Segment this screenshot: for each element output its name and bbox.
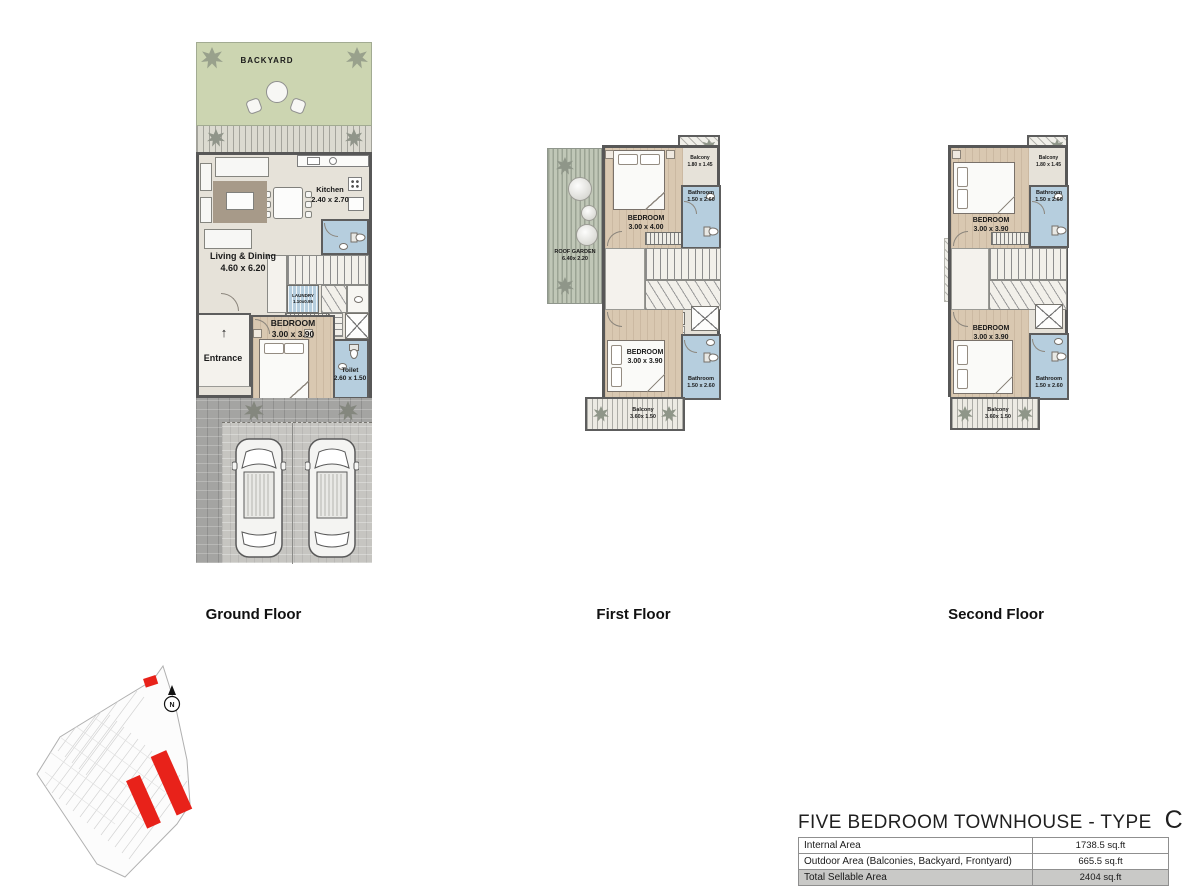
door-arc xyxy=(607,312,622,327)
room-name: BEDROOM xyxy=(961,216,1021,225)
second-floor-interior: BEDROOM 3.00 x 3.90 Bathroom 1.50 x 2.60 xyxy=(948,145,1068,397)
washbasin-icon xyxy=(706,339,715,346)
blanket-fold xyxy=(289,381,309,399)
room-dims: 3.00 x 3.90 xyxy=(961,333,1021,342)
room-name: Bathroom xyxy=(1029,190,1069,197)
blanket-fold xyxy=(645,192,665,210)
staircase xyxy=(287,255,369,285)
ground-floor-plan: BACKYARD Kitchen 2.40 x 2.70 xyxy=(196,42,372,565)
first-floor-title: First Floor xyxy=(561,606,706,623)
vanity-nook xyxy=(347,285,369,313)
roof-garden-area: ROOF GARDEN 6.40x 2.20 xyxy=(547,148,602,304)
room-dims: 1.10x0.95 xyxy=(288,299,318,305)
pillow-icon xyxy=(957,369,968,389)
room-name: Balcony xyxy=(617,407,669,414)
living-dining-label: Living & Dining 4.60 x 6.20 xyxy=(203,251,283,274)
blanket-fold xyxy=(647,374,665,392)
sink-bowl-icon xyxy=(329,157,337,165)
balcony: Balcony 3.60x 1.50 xyxy=(585,397,685,431)
dining-chair-icon xyxy=(305,211,312,218)
up-arrow-icon: ↑ xyxy=(214,325,234,342)
patio-table-icon xyxy=(266,81,288,103)
bedroom-label: BEDROOM 3.00 x 3.90 xyxy=(961,216,1021,234)
nightstand-icon xyxy=(666,150,675,159)
plant-icon xyxy=(338,401,358,421)
staircase xyxy=(989,248,1067,280)
sofa-icon xyxy=(204,229,252,249)
room-name: BACKYARD xyxy=(227,56,307,66)
bed-icon xyxy=(259,339,309,399)
pillow-icon xyxy=(640,154,660,165)
sofa-icon xyxy=(215,157,269,177)
parking-pad xyxy=(222,422,372,563)
balcony-label: Balcony 3.60x 1.50 xyxy=(972,407,1024,421)
room-dims: 3.60x 1.50 xyxy=(617,414,669,421)
room-name: Bathroom xyxy=(1029,376,1069,383)
driveway-area xyxy=(196,398,372,563)
balcony-label: Balcony 3.60x 1.50 xyxy=(617,407,669,421)
bed-icon xyxy=(953,162,1015,214)
table-row-total: Total Sellable Area 2404 sq.ft xyxy=(799,869,1168,885)
car-icon xyxy=(305,436,359,560)
ground-floor-interior: Kitchen 2.40 x 2.70 Living & Dining 4.60… xyxy=(196,152,372,398)
deck-area xyxy=(196,126,372,152)
pillow-icon xyxy=(618,154,638,165)
second-floor-title: Second Floor xyxy=(922,606,1070,623)
bathroom-label: Bathroom 1.50 x 2.60 xyxy=(1029,376,1069,390)
plant-icon xyxy=(201,47,223,69)
area-row-label: Internal Area xyxy=(799,838,1033,853)
floor-plan-sheet: BACKYARD Kitchen 2.40 x 2.70 xyxy=(0,0,1183,896)
room-dims: 1.80 x 1.45 xyxy=(1031,162,1066,169)
blanket-fold xyxy=(997,196,1015,214)
pillow-icon xyxy=(264,343,284,354)
plant-icon xyxy=(346,47,368,69)
room-name: LAUNDRY xyxy=(288,293,318,299)
bedroom-label: BEDROOM 3.00 x 4.00 xyxy=(617,214,675,232)
toilet-icon xyxy=(704,353,719,363)
kitchen-sink-icon xyxy=(307,157,320,165)
pillow-icon xyxy=(611,367,622,387)
bed-icon xyxy=(613,150,665,210)
shaft xyxy=(691,306,719,331)
balcony: Balcony 3.60x 1.50 xyxy=(950,397,1040,430)
tree-icon xyxy=(576,224,598,246)
area-row-value: 665.5 sq.ft xyxy=(1033,854,1168,869)
area-row-label: Total Sellable Area xyxy=(799,870,1033,885)
entrance-area: ↑ Entrance xyxy=(199,313,251,387)
toilet-icon xyxy=(704,227,719,237)
room-dims: 3.60x 1.50 xyxy=(972,414,1024,421)
table-row: Outdoor Area (Balconies, Backyard, Front… xyxy=(799,853,1168,869)
plant-icon xyxy=(556,157,574,175)
stair-landing xyxy=(605,248,645,310)
room-dims: 1.50 x 2.60 xyxy=(1029,383,1069,390)
entrance-arrow: ↑ xyxy=(214,325,234,342)
door-arc xyxy=(324,223,338,237)
room-dims: 3.00 x 4.00 xyxy=(617,223,675,232)
patio-chair-icon xyxy=(289,97,307,115)
plant-icon xyxy=(207,129,225,147)
room-dims: 1.80 x 1.45 xyxy=(682,162,718,169)
plant-icon xyxy=(957,406,973,422)
staircase xyxy=(645,248,721,280)
plan-type-letter: C xyxy=(1165,806,1183,835)
plan-title-text: FIVE BEDROOM TOWNHOUSE - TYPE xyxy=(798,812,1152,834)
area-row-value: 1738.5 sq.ft xyxy=(1033,838,1168,853)
room-dims: 1.50 x 2.60 xyxy=(681,383,721,390)
room-name: Toilet xyxy=(328,367,372,375)
staircase-winder xyxy=(321,285,347,313)
toilet-label: Toilet 2.60 x 1.50 xyxy=(328,367,372,384)
backyard-label: BACKYARD xyxy=(227,56,307,66)
coffee-table-icon xyxy=(226,192,254,210)
shaft xyxy=(1035,304,1063,329)
plant-icon xyxy=(556,277,574,295)
patio-chair-icon xyxy=(245,97,263,115)
door-arc xyxy=(684,340,697,353)
car-icon xyxy=(232,436,286,560)
roof-garden-label: ROOF GARDEN 6.40x 2.20 xyxy=(549,249,601,263)
tree-icon xyxy=(568,177,592,201)
north-label: N xyxy=(169,702,174,709)
ground-floor-title: Ground Floor xyxy=(181,606,326,623)
site-plan: N xyxy=(25,652,230,890)
toilet-icon xyxy=(351,233,366,243)
pillow-icon xyxy=(957,167,968,187)
balcony-label: Balcony 1.80 x 1.45 xyxy=(682,155,718,168)
bedroom-label: BEDROOM 3.00 x 3.90 xyxy=(961,324,1021,342)
bathroom-label: Bathroom 1.50 x 2.60 xyxy=(1029,190,1069,204)
laundry-label: LAUNDRY 1.10x0.95 xyxy=(288,293,318,305)
toilet-icon xyxy=(1052,226,1067,236)
bathroom-label: Bathroom 1.50 x 2.60 xyxy=(681,376,721,390)
bathroom-label: Bathroom 1.50 x 2.60 xyxy=(681,190,721,204)
room-dims: 2.60 x 1.50 xyxy=(328,375,372,383)
wardrobe xyxy=(645,232,685,245)
nightstand-icon xyxy=(605,150,614,159)
armchair-icon xyxy=(200,163,212,191)
washbasin-icon xyxy=(1054,338,1063,345)
area-table: Internal Area 1738.5 sq.ft Outdoor Area … xyxy=(798,837,1169,886)
door-arc xyxy=(607,231,622,246)
washbasin-icon xyxy=(354,296,363,303)
second-floor-plan: Balcony 1.80 x 1.45 BEDROOM 3.00 x 3.90 xyxy=(944,135,1074,435)
room-name: Bathroom xyxy=(681,376,721,383)
room-name: ROOF GARDEN xyxy=(549,249,601,256)
room-dims: 4.60 x 6.20 xyxy=(203,263,283,275)
first-floor-plan: ROOF GARDEN 6.40x 2.20 Balcony 1.80 x 1.… xyxy=(545,135,720,435)
tree-icon xyxy=(581,205,597,221)
room-dims: 1.50 x 2.60 xyxy=(681,197,721,204)
room-name: BEDROOM xyxy=(615,348,675,357)
nightstand-icon xyxy=(952,150,961,159)
plant-icon xyxy=(244,401,264,421)
blanket-fold xyxy=(995,376,1013,394)
room-name: Entrance xyxy=(199,353,247,365)
door-arc xyxy=(1032,339,1045,352)
powder-room xyxy=(321,219,369,255)
room-dims: 3.00 x 3.90 xyxy=(251,329,335,340)
armchair-icon xyxy=(200,197,212,223)
bedroom-label: BEDROOM 3.00 x 3.90 xyxy=(615,348,675,366)
door-arc xyxy=(221,293,239,311)
stair-landing xyxy=(951,248,989,310)
laundry-room: LAUNDRY 1.10x0.95 xyxy=(287,285,319,313)
bedroom-label: BEDROOM 3.00 x 3.90 xyxy=(251,318,335,340)
pillow-icon xyxy=(284,343,304,354)
pillow-icon xyxy=(957,345,968,365)
room-dims: 6.40x 2.20 xyxy=(549,256,601,263)
toilet-icon xyxy=(349,344,359,359)
pillow-icon xyxy=(957,189,968,209)
room-name: Bathroom xyxy=(681,190,721,197)
plant-icon xyxy=(593,406,609,422)
room-name: Balcony xyxy=(972,407,1024,414)
area-row-label: Outdoor Area (Balconies, Backyard, Front… xyxy=(799,854,1033,869)
table-row: Internal Area 1738.5 sq.ft xyxy=(799,838,1168,853)
washbasin-icon xyxy=(339,243,348,250)
room-name: BEDROOM xyxy=(251,318,335,329)
bed-icon xyxy=(953,340,1013,394)
plant-icon xyxy=(345,129,363,147)
kitchen-label: Kitchen 2.40 x 2.70 xyxy=(297,185,363,205)
shaft xyxy=(345,313,369,339)
room-dims: 2.40 x 2.70 xyxy=(297,195,363,205)
parking-divider-line xyxy=(292,423,293,564)
area-row-value: 2404 sq.ft xyxy=(1033,870,1168,885)
room-dims: 3.00 x 3.90 xyxy=(961,225,1021,234)
toilet-icon xyxy=(1052,352,1067,362)
entrance-label: Entrance xyxy=(199,353,247,365)
room-dims: 1.50 x 2.60 xyxy=(1029,197,1069,204)
backyard-area: BACKYARD xyxy=(196,42,372,126)
room-name: BEDROOM xyxy=(961,324,1021,333)
room-dims: 3.00 x 3.90 xyxy=(615,357,675,366)
room-name: Kitchen xyxy=(297,185,363,195)
room-name: Living & Dining xyxy=(203,251,283,263)
first-floor-interior: BEDROOM 3.00 x 4.00 Bathroom 1.50 x 2.60 xyxy=(602,145,720,397)
room-name: BEDROOM xyxy=(617,214,675,223)
balcony-label: Balcony 1.80 x 1.45 xyxy=(1031,155,1066,168)
plan-title: FIVE BEDROOM TOWNHOUSE - TYPE C xyxy=(798,806,1183,835)
